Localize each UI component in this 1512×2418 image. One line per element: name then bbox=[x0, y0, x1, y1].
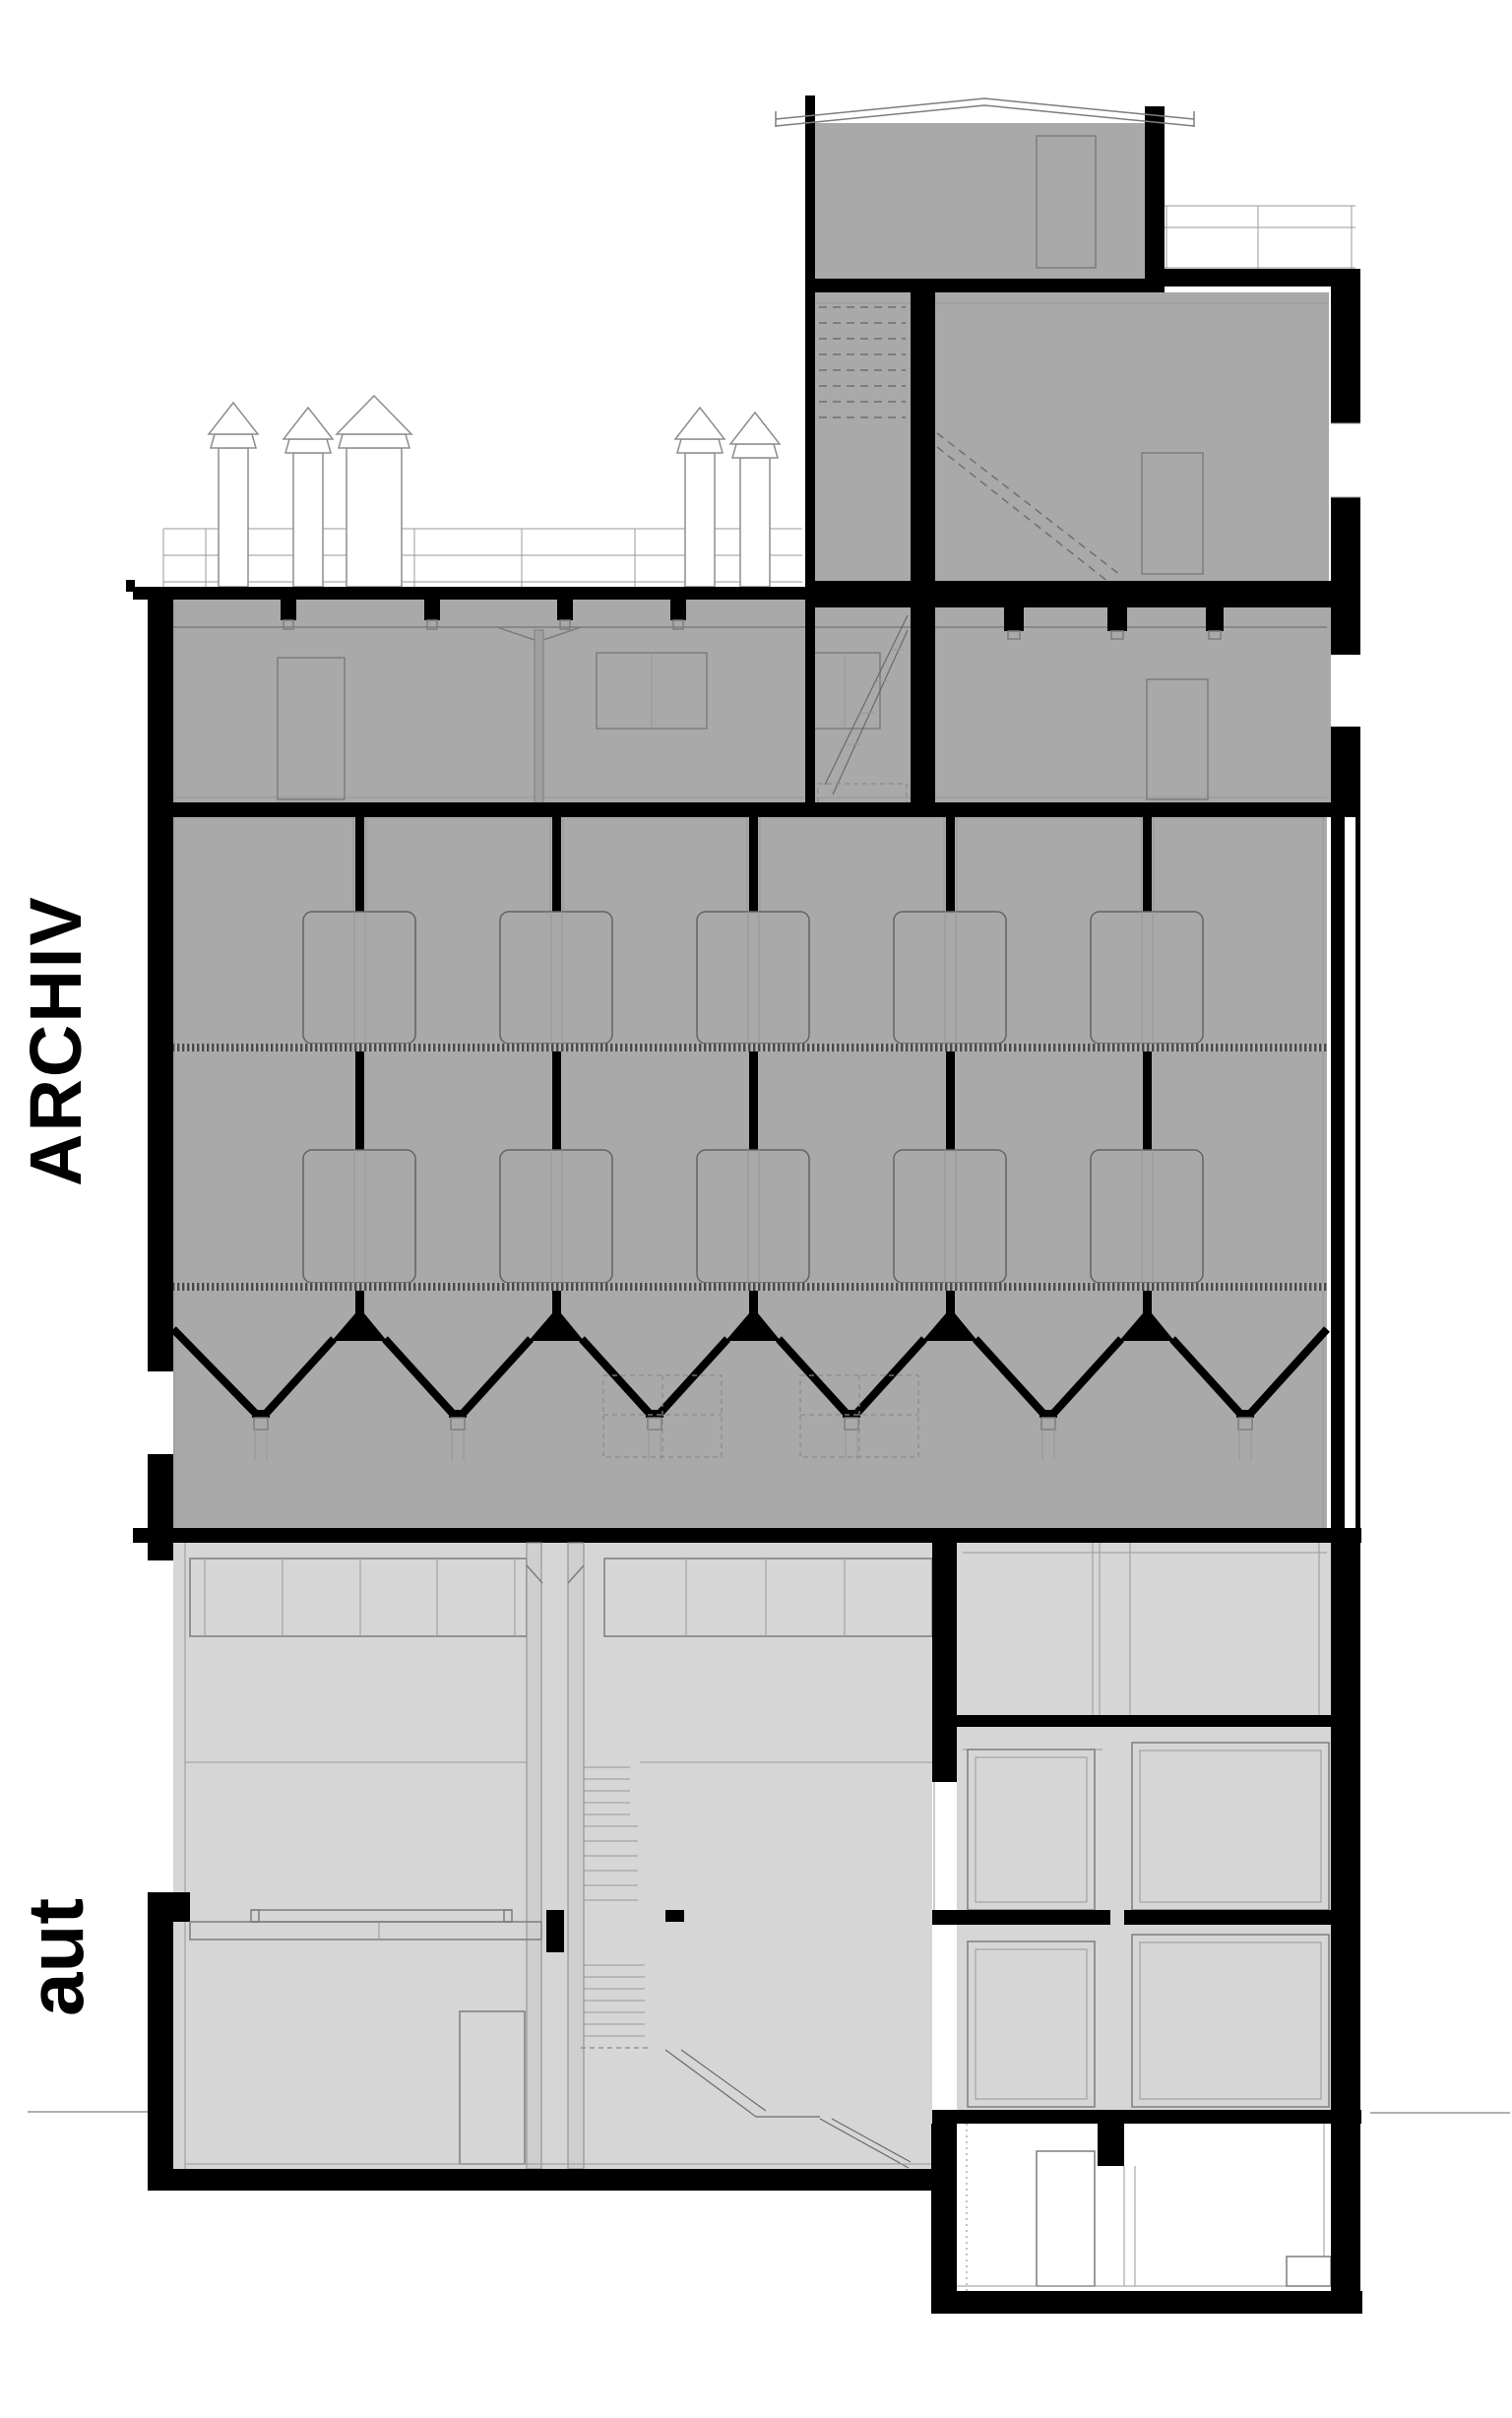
main-roof bbox=[126, 396, 812, 600]
tower-top-right-wall bbox=[1145, 106, 1165, 279]
hall-bottom-slab bbox=[148, 2169, 955, 2191]
right-wall-window-attic bbox=[1331, 655, 1360, 727]
roof-slab bbox=[133, 587, 812, 600]
vent-icon bbox=[675, 408, 724, 587]
lower-hall bbox=[148, 1543, 955, 2191]
roof-slab-end bbox=[126, 580, 135, 592]
right-wall-cavity bbox=[1345, 817, 1355, 1528]
architectural-section-sheet: ARCHIV aut bbox=[0, 0, 1512, 2418]
archive-levels bbox=[133, 817, 1361, 1543]
wing-room-A bbox=[957, 1543, 1331, 1715]
attic-room-fill bbox=[157, 591, 1331, 817]
label-aut: aut bbox=[12, 1898, 99, 2016]
wing-slab-2 bbox=[932, 1910, 1360, 1925]
vent-icon bbox=[730, 413, 780, 587]
grating-floor-2 bbox=[157, 1283, 1327, 1291]
wing-basement bbox=[931, 2124, 1362, 2314]
stair-tower bbox=[776, 95, 1360, 607]
terrace-slab bbox=[1145, 269, 1360, 286]
tower-left-wall bbox=[805, 95, 815, 607]
roof-vents bbox=[209, 396, 780, 587]
tower-level2-slab bbox=[805, 581, 1360, 607]
tower-top-slab bbox=[805, 279, 1165, 292]
vent-icon bbox=[337, 396, 411, 587]
grating-floor-1 bbox=[157, 1044, 1327, 1051]
wing-slab-1 bbox=[932, 1715, 1360, 1727]
tower-shaft-wall bbox=[911, 292, 935, 607]
archive-bottom-slab bbox=[133, 1528, 1361, 1543]
wing-slab-gap bbox=[1110, 1910, 1124, 1925]
right-wing bbox=[931, 1543, 1362, 2314]
wing-room-B bbox=[957, 1727, 1331, 1910]
right-wall-window-tower bbox=[1331, 423, 1360, 497]
vent-icon bbox=[209, 403, 258, 587]
wing-left-wall bbox=[932, 1543, 957, 1782]
building-section-drawing: ARCHIV aut bbox=[0, 0, 1512, 2418]
attic-floor-slab bbox=[148, 802, 1360, 817]
wing-slab-3 bbox=[932, 2110, 1361, 2124]
vent-icon bbox=[283, 408, 333, 587]
attic-level bbox=[148, 591, 1360, 817]
tower-roof bbox=[776, 98, 1194, 127]
left-wall-window-hopper bbox=[148, 1371, 173, 1454]
left-wall-window-hall bbox=[148, 1560, 173, 1892]
label-archiv: ARCHIV bbox=[15, 895, 96, 1186]
terrace-railing bbox=[1165, 206, 1355, 269]
labels: ARCHIV aut bbox=[12, 895, 99, 2016]
wing-room-C bbox=[957, 1925, 1331, 2110]
